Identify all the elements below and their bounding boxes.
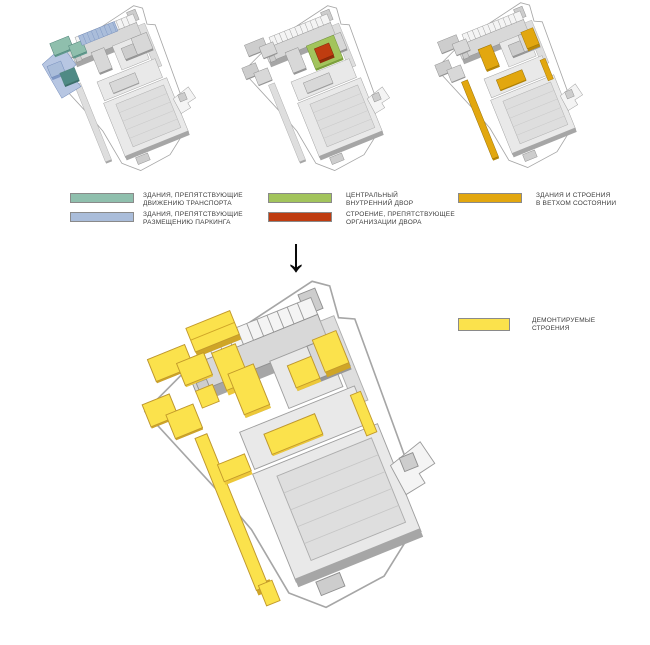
legend-line: СТРОЕНИЯ (532, 325, 595, 333)
legend-item: ЗДАНИЯ И СТРОЕНИЯ В ВЕТХОМ СОСТОЯНИИ (458, 193, 616, 207)
legend-line: ДЕМОНТИРУЕМЫЕ (532, 317, 595, 325)
legend-label: ЗДАНИЯ, ПРЕПЯТСТВУЮЩИЕ ДВИЖЕНИЮ ТРАНСПОР… (143, 192, 243, 207)
legend-line: ЗДАНИЯ, ПРЕПЯТСТВУЮЩИЕ (143, 211, 243, 219)
legend-label: ЗДАНИЯ И СТРОЕНИЯ В ВЕТХОМ СОСТОЯНИИ (536, 192, 616, 207)
red-swatch (268, 212, 332, 222)
diagram-demolition-summary (122, 261, 470, 643)
site-base (425, 0, 600, 185)
teal-swatch (70, 193, 134, 203)
legend-label: ЗДАНИЯ, ПРЕПЯТСТВУЮЩИЕ РАЗМЕЩЕНИЮ ПАРКИН… (143, 211, 243, 226)
legend-item: ДЕМОНТИРУЕМЫЕ СТРОЕНИЯ (458, 318, 595, 332)
demolition-building (258, 580, 280, 606)
legend-dilapidated: ЗДАНИЯ И СТРОЕНИЯ В ВЕТХОМ СОСТОЯНИИ (458, 193, 616, 207)
swatch-rect (71, 194, 134, 203)
legend-line: ЦЕНТРАЛЬНЫЙ (346, 192, 413, 200)
diagram-dilapidated (425, 0, 600, 185)
swatch-rect (269, 194, 332, 203)
diagram-transport-parking (35, 0, 214, 190)
legend-line: ЗДАНИЯ, ПРЕПЯТСТВУЮЩИЕ (143, 192, 243, 200)
down-arrow: ↓ (284, 232, 308, 280)
swatch-rect (459, 194, 522, 203)
legend-courtyard: ЦЕНТРАЛЬНЫЙ ВНУТРЕННИЙ ДВОР СТРОЕНИЕ, ПР… (268, 193, 455, 226)
legend-line: ВНУТРЕННИЙ ДВОР (346, 200, 413, 208)
legend-label: ДЕМОНТИРУЕМЫЕ СТРОЕНИЯ (532, 317, 595, 332)
legend-line: ДВИЖЕНИЮ ТРАНСПОРТА (143, 200, 243, 208)
legend-item: СТРОЕНИЕ, ПРЕПЯТСТВУЮЩЕЕ ОРГАНИЗАЦИИ ДВО… (268, 212, 455, 226)
swatch-rect (459, 319, 510, 331)
green-swatch (268, 193, 332, 203)
legend-line: РАЗМЕЩЕНИЮ ПАРКИНГА (143, 219, 243, 227)
legend-line: СТРОЕНИЕ, ПРЕПЯТСТВУЮЩЕЕ (346, 211, 455, 219)
legend-item: ЦЕНТРАЛЬНЫЙ ВНУТРЕННИЙ ДВОР (268, 193, 455, 207)
gold-swatch (458, 193, 522, 203)
legend-demolition: ДЕМОНТИРУЕМЫЕ СТРОЕНИЯ (458, 318, 595, 332)
legend-line: ОРГАНИЗАЦИИ ДВОРА (346, 219, 455, 227)
site-base (123, 264, 469, 643)
legend-transport-parking: ЗДАНИЯ, ПРЕПЯТСТВУЮЩИЕ ДВИЖЕНИЮ ТРАНСПОР… (70, 193, 243, 226)
blue-swatch (70, 212, 134, 222)
legend-item: ЗДАНИЯ, ПРЕПЯТСТВУЮЩИЕ ДВИЖЕНИЮ ТРАНСПОР… (70, 193, 243, 207)
legend-label: СТРОЕНИЕ, ПРЕПЯТСТВУЮЩЕЕ ОРГАНИЗАЦИИ ДВО… (346, 211, 455, 226)
diagram-courtyard (232, 0, 407, 188)
swatch-rect (269, 213, 332, 222)
yellow-swatch (458, 318, 510, 331)
legend-label: ЦЕНТРАЛЬНЫЙ ВНУТРЕННИЙ ДВОР (346, 192, 413, 207)
swatch-rect (71, 213, 134, 222)
legend-item: ЗДАНИЯ, ПРЕПЯТСТВУЮЩИЕ РАЗМЕЩЕНИЮ ПАРКИН… (70, 212, 243, 226)
legend-line: ЗДАНИЯ И СТРОЕНИЯ (536, 192, 616, 200)
legend-line: В ВЕТХОМ СОСТОЯНИИ (536, 200, 616, 208)
site-base (232, 0, 407, 188)
infographic-canvas: ЗДАНИЯ, ПРЕПЯТСТВУЮЩИЕ ДВИЖЕНИЮ ТРАНСПОР… (0, 0, 650, 645)
